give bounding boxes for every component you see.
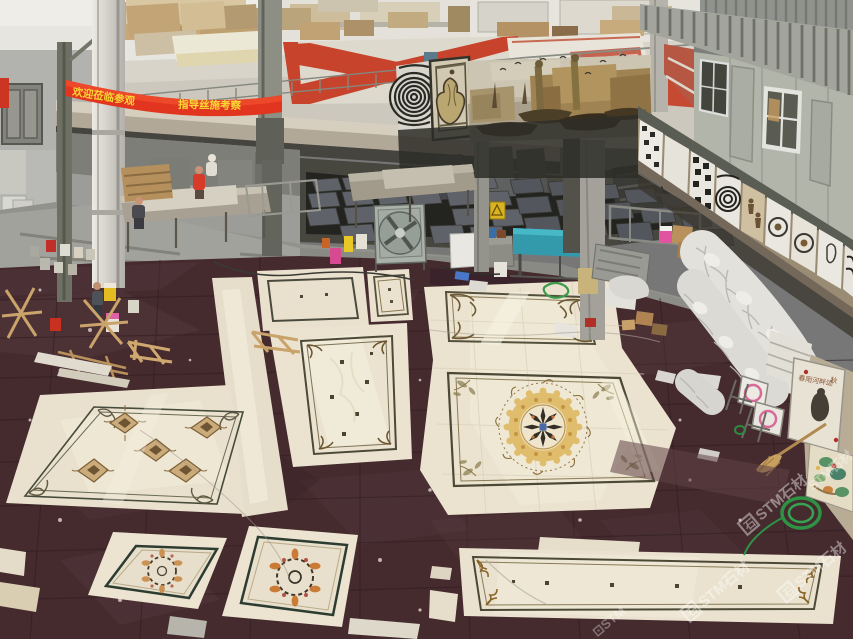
svg-text:指导丝施考察: 指导丝施考察 xyxy=(178,98,242,112)
